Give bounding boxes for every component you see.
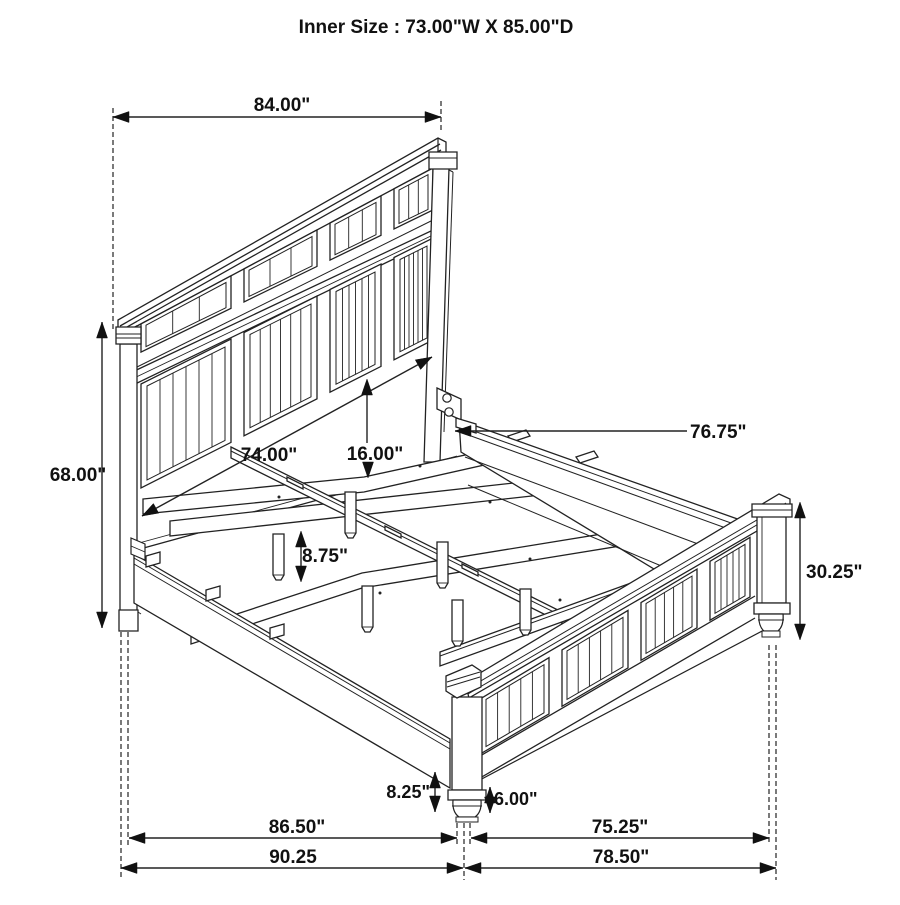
svg-text:78.50": 78.50" — [593, 847, 650, 868]
svg-text:74.00": 74.00" — [241, 445, 298, 466]
svg-text:Inner Size : 73.00"W X 85.00"D: Inner Size : 73.00"W X 85.00"D — [299, 17, 574, 38]
svg-text:30.25": 30.25" — [806, 562, 863, 583]
svg-text:68.00": 68.00" — [50, 465, 107, 486]
svg-text:90.25: 90.25 — [269, 847, 317, 868]
svg-text:8.75": 8.75" — [302, 546, 348, 567]
svg-text:6.00": 6.00" — [494, 789, 538, 809]
svg-text:8.25": 8.25" — [386, 782, 430, 802]
svg-text:75.25": 75.25" — [592, 817, 649, 838]
svg-text:84.00": 84.00" — [254, 95, 311, 116]
svg-text:16.00": 16.00" — [347, 444, 404, 465]
svg-text:76.75": 76.75" — [690, 422, 747, 443]
svg-text:86.50": 86.50" — [269, 817, 326, 838]
